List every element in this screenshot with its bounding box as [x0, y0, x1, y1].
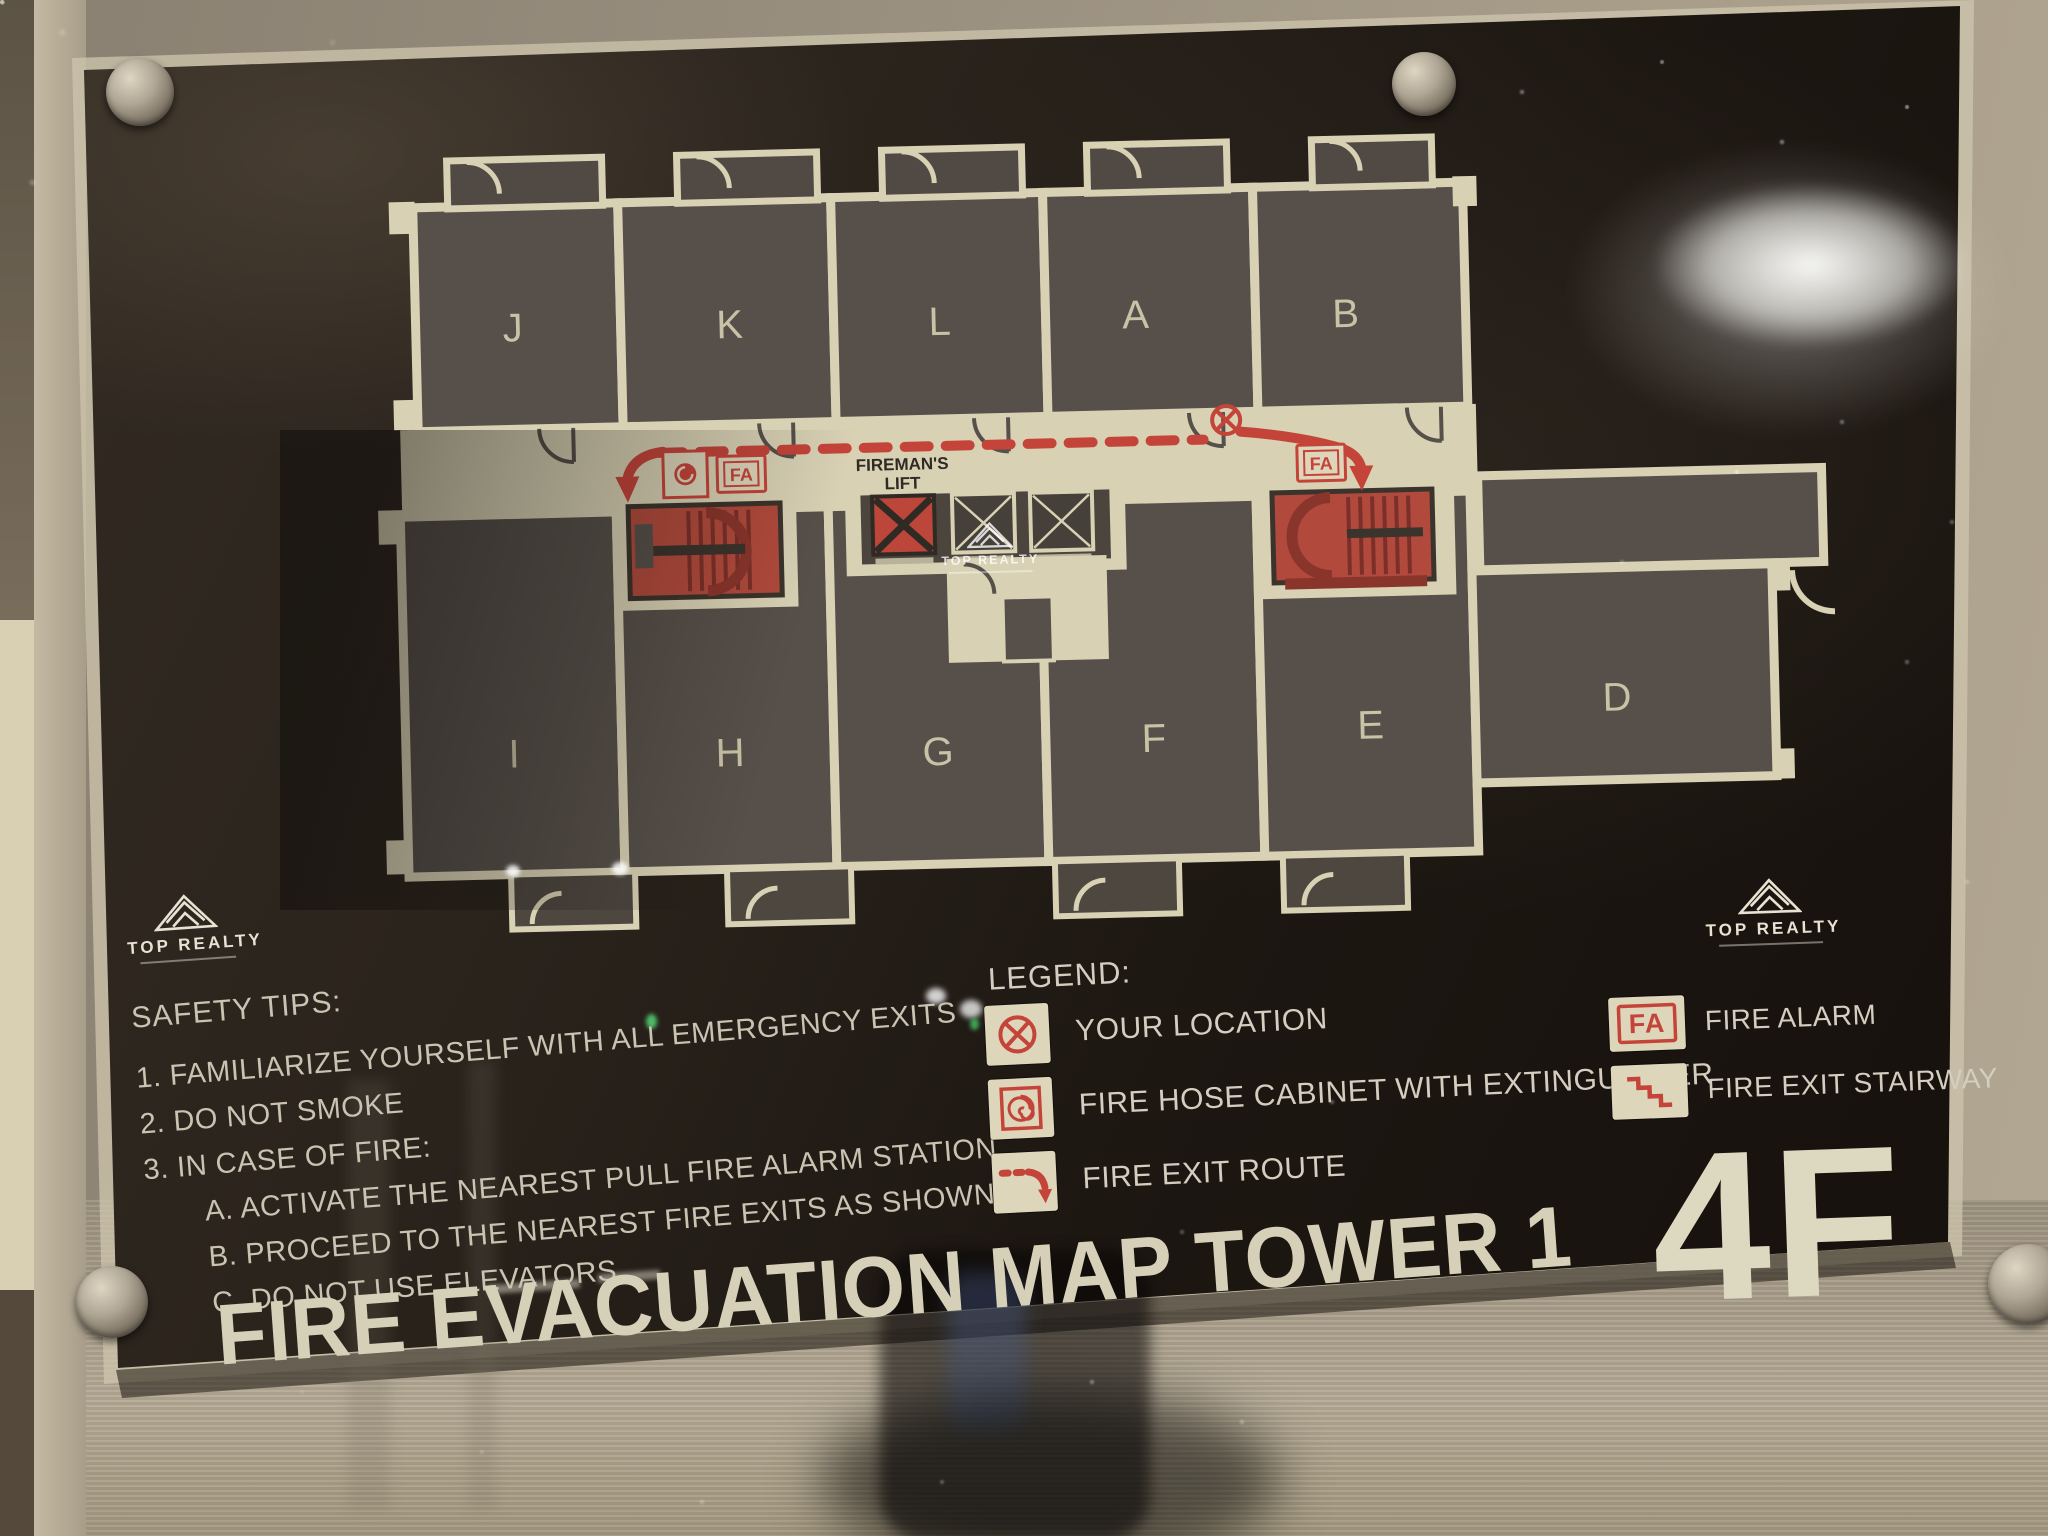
room-A-outline [1043, 187, 1258, 416]
roof-icon [152, 892, 218, 932]
room-label: B [1332, 292, 1360, 337]
fire-exit-route-icon [991, 1151, 1058, 1214]
brand-logo-right: TOP REALTY [1704, 876, 1836, 947]
right-fire-exit-stairway [1272, 489, 1434, 590]
room-D-outline [1472, 564, 1777, 783]
brand-name: TOP REALTY [1705, 917, 1836, 942]
screw-icon-bottom-left [76, 1266, 148, 1338]
fire-alarm-icon: FA [1608, 995, 1686, 1052]
room-label: F [1141, 717, 1167, 762]
photo-of-fire-evacuation-sign: FIREMAN'S LIFT FA [0, 0, 2048, 1536]
legend-label: FIRE EXIT ROUTE [1082, 1150, 1347, 1197]
roof-icon [966, 521, 1013, 548]
photo-shadow-over-plan [280, 430, 1040, 910]
fire-hose-icon [988, 1077, 1055, 1140]
brand-name: TOP REALTY [127, 931, 248, 959]
water-droplets [0, 0, 4, 4]
brand-name: TOP REALTY [938, 552, 1042, 569]
screw-icon-top-left [106, 58, 174, 126]
legend-label: FIRE EXIT STAIRWAY [1707, 1062, 1999, 1105]
legend-heading: LEGEND: [987, 954, 1132, 997]
room-label: E [1357, 703, 1385, 748]
your-location-icon [984, 1003, 1051, 1066]
room-label: K [716, 303, 744, 348]
brand-logo-left: TOP REALTY [124, 890, 248, 965]
roof-icon [1737, 877, 1802, 915]
floor-number: 4F [1648, 1114, 1907, 1335]
legend-label: FIRE ALARM [1704, 999, 1877, 1038]
fire-alarm-icon-plan-right: FA [1297, 444, 1346, 481]
legend-label: YOUR LOCATION [1075, 1002, 1329, 1048]
room-label: L [928, 300, 951, 345]
brand-watermark: TOP REALTY [937, 521, 1042, 574]
reflection-dot [506, 865, 520, 877]
wing-door-arc [1792, 569, 1835, 612]
svg-text:FA: FA [1309, 453, 1332, 474]
light-reflection [1590, 150, 2030, 380]
reflection-dot [612, 862, 628, 875]
screw-icon-top-right [1392, 52, 1456, 116]
room-label: J [502, 306, 523, 350]
room-label: D [1602, 675, 1632, 720]
room-label: A [1122, 293, 1150, 338]
room-B-outline [1252, 182, 1467, 411]
